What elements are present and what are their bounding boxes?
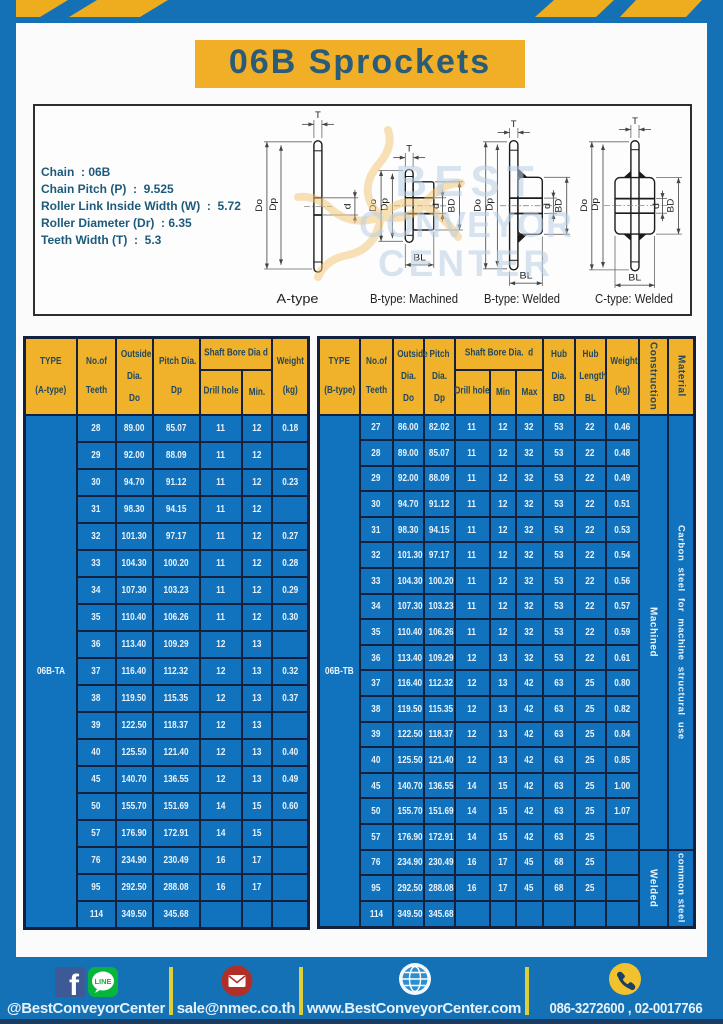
svg-text:B-type: Welded: B-type: Welded — [484, 292, 560, 306]
svg-text:Dp: Dp — [268, 198, 279, 211]
svg-text:C-type: Welded: C-type: Welded — [595, 292, 673, 306]
svg-text:d: d — [342, 203, 353, 209]
svg-text:d: d — [651, 203, 662, 209]
svg-text:T: T — [511, 119, 517, 130]
svg-text:A-type: A-type — [277, 292, 319, 306]
svg-text:Do: Do — [579, 199, 590, 212]
svg-text:LINE: LINE — [94, 977, 111, 986]
svg-text:B-type: Machined: B-type: Machined — [370, 292, 458, 306]
svg-text:T: T — [315, 110, 321, 121]
svg-text:f: f — [69, 969, 80, 1002]
svg-text:Do: Do — [254, 199, 265, 212]
svg-text:BEST: BEST — [395, 157, 540, 206]
svg-text:CONVEYOR: CONVEYOR — [359, 204, 573, 245]
svg-text:CENTER: CENTER — [378, 243, 554, 284]
svg-text:BD: BD — [666, 198, 677, 212]
svg-text:BL: BL — [628, 273, 641, 284]
svg-text:T: T — [406, 144, 412, 155]
svg-text:T: T — [632, 116, 638, 127]
svg-text:Dp: Dp — [590, 198, 601, 211]
